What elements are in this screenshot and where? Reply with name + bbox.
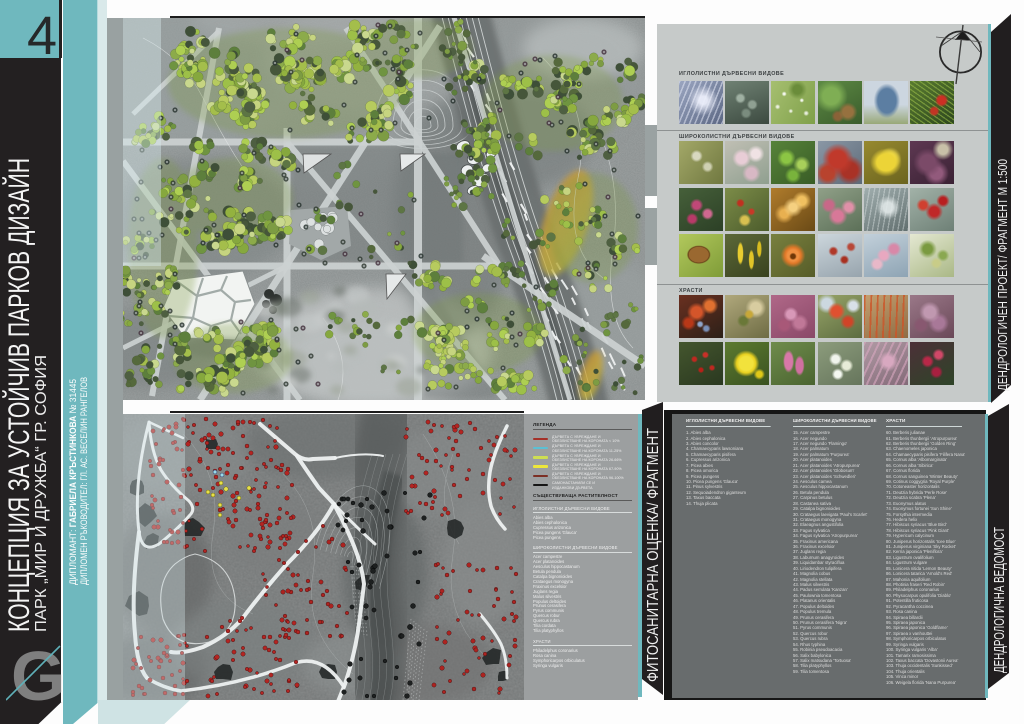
- svg-text:ДЕНДРОЛОГИЧЕН ПРОЕКТ/ ФРАГМЕНТ: ДЕНДРОЛОГИЧЕН ПРОЕКТ/ ФРАГМЕНТ М 1:500: [996, 159, 1010, 391]
- svg-text:ДИПЛОМЕН РЪКОВОДИТЕЛ: ГЛ. АС.: ДИПЛОМЕН РЪКОВОДИТЕЛ: ГЛ. АС. ВЕСЕЛИН РА…: [79, 377, 90, 585]
- svg-text:ДЕНДРОЛОГИЧНА ВЕДОМОСТ: ДЕНДРОЛОГИЧНА ВЕДОМОСТ: [992, 527, 1008, 673]
- svg-text:ДИПЛОМАНТ: ГАБРИЕЛА КРЪСТИНКОВ: ДИПЛОМАНТ: ГАБРИЕЛА КРЪСТИНКОВА № 31445: [68, 379, 79, 585]
- svg-text:ФИТОСАНИТАРНА ОЦЕНКА/ ФРАГМЕНТ: ФИТОСАНИТАРНА ОЦЕНКА/ ФРАГМЕНТ: [645, 428, 662, 682]
